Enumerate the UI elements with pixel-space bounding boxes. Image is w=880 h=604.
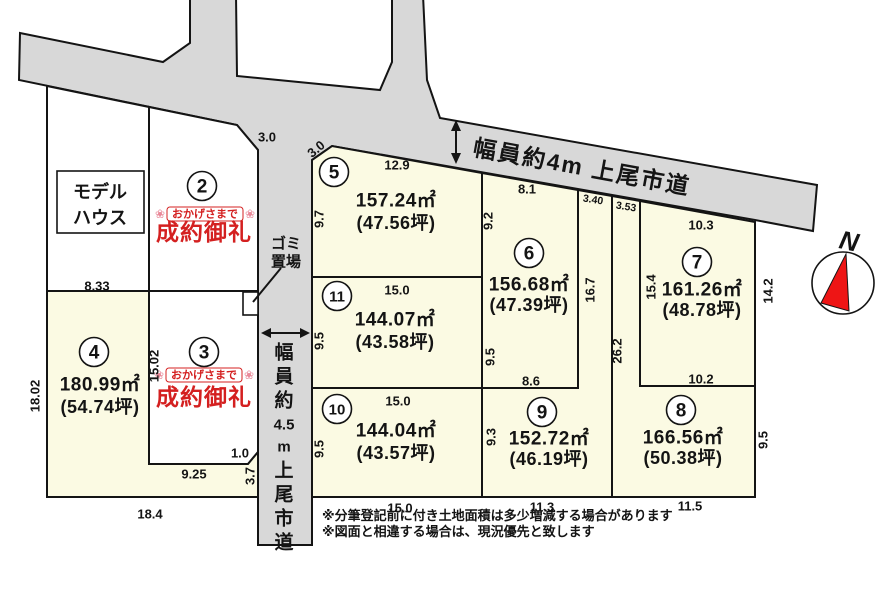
garbage-label-line2: 置場 [271, 254, 301, 271]
plot-6-tsubo: (47.39坪) [489, 295, 568, 315]
dimension-label: 3.7 [243, 467, 258, 485]
sold-label: 成約御礼 [156, 384, 252, 410]
dimension-label: 8.1 [518, 182, 536, 197]
dimension-label: 9.5 [756, 431, 771, 449]
dimension-label: 9.7 [312, 210, 327, 228]
plot-11-area: 144.07㎡ [355, 308, 436, 331]
plot-9-number: 9 [537, 403, 548, 424]
side-road-char: 約 [274, 389, 293, 412]
side-road-char: 上 [274, 460, 293, 482]
garbage-label-line1: ゴミ [271, 235, 301, 253]
sold-label: 成約御礼 [156, 219, 252, 245]
dimension-label: 15.0 [384, 283, 409, 298]
plot-8-tsubo: (50.38坪) [643, 448, 722, 468]
side-road-char: 幅 [274, 341, 293, 364]
plot-7-number: 7 [692, 253, 703, 274]
plot-9-area: 152.72㎡ [509, 427, 590, 450]
plot-5-area: 157.24㎡ [356, 189, 437, 212]
dimension-label: 1.0 [231, 446, 249, 461]
footnote-line1: ※分筆登記前に付き土地面積は多少増減する場合があります [322, 508, 673, 523]
dimension-label: 9.5 [312, 440, 327, 458]
dimension-label: 8.33 [84, 279, 109, 294]
dimension-label: 15.4 [644, 274, 659, 300]
dimension-label: 10.2 [688, 372, 713, 387]
plot-11-tsubo: (43.58坪) [355, 332, 434, 352]
model-house-label-line1: モデル [73, 181, 127, 202]
dimension-label: 9.25 [181, 467, 206, 482]
plot-7-tsubo: (48.78坪) [662, 300, 741, 320]
plot-8-number: 8 [676, 401, 687, 422]
dimension-label: 9.2 [481, 212, 496, 230]
dimension-label: 16.7 [583, 277, 598, 302]
footnote-line2: ※図面と相違する場合は、現況優先と致します [322, 524, 595, 539]
dimension-label: 14.2 [761, 278, 776, 303]
side-road-char: 市 [274, 507, 293, 530]
side-road-char: 員 [274, 366, 293, 388]
plot-6-area: 156.68㎡ [489, 273, 570, 296]
dimension-label: 9.5 [312, 332, 327, 350]
plot-10-area: 144.04㎡ [356, 419, 437, 442]
plot-2-number: 2 [197, 177, 208, 198]
model-house-label-line2: ハウス [73, 208, 127, 228]
dimension-label: 3.0 [258, 130, 276, 145]
flower-icon: ❀ [244, 368, 254, 382]
subdivision-map: ゴミ 置場 幅員約4m 上尾市道 幅 員 約 4.5 m 上 尾 市 道 モデル… [0, 0, 880, 604]
side-road-char: m [277, 439, 290, 456]
dimension-label: 18.4 [137, 507, 163, 522]
dimension-label: 18.02 [28, 380, 43, 413]
subdivision-map-page: ゴミ 置場 幅員約4m 上尾市道 幅 員 約 4.5 m 上 尾 市 道 モデル… [0, 0, 880, 604]
plot-4-tsubo: (54.74坪) [60, 397, 139, 417]
side-road-char: 尾 [274, 484, 293, 506]
plot-5-tsubo: (47.56坪) [356, 213, 435, 233]
dimension-label: 26.2 [610, 338, 625, 363]
side-road-char: 道 [274, 531, 293, 554]
dimension-label: 12.9 [384, 158, 409, 173]
garbage-place-notch [243, 292, 258, 315]
plot-8-area: 166.56㎡ [643, 426, 724, 449]
plot-10-number: 10 [329, 402, 346, 419]
plot-4-area: 180.99㎡ [60, 373, 141, 396]
dimension-label: 9.5 [483, 348, 498, 366]
dimension-label: 8.6 [522, 374, 540, 389]
dimension-label: 15.02 [147, 350, 162, 383]
plot-3-number: 3 [199, 343, 210, 364]
plot-4-number: 4 [89, 343, 100, 364]
plot-5-number: 5 [329, 163, 340, 184]
dimension-label: 15.0 [385, 394, 410, 409]
plot-6-number: 6 [524, 244, 535, 265]
dimension-label: 10.3 [688, 218, 713, 233]
side-road-char: 4.5 [274, 417, 295, 434]
plot-10-tsubo: (43.57坪) [356, 443, 435, 463]
thanks-label: おかげさまで [171, 368, 237, 382]
plot-11-number: 11 [329, 289, 345, 306]
dimension-label: 9.3 [484, 428, 499, 446]
dimension-label: 11.5 [678, 499, 703, 514]
plot-9-tsubo: (46.19坪) [509, 449, 588, 469]
compass: N [812, 224, 874, 314]
plot-7-area: 161.26㎡ [662, 278, 743, 301]
